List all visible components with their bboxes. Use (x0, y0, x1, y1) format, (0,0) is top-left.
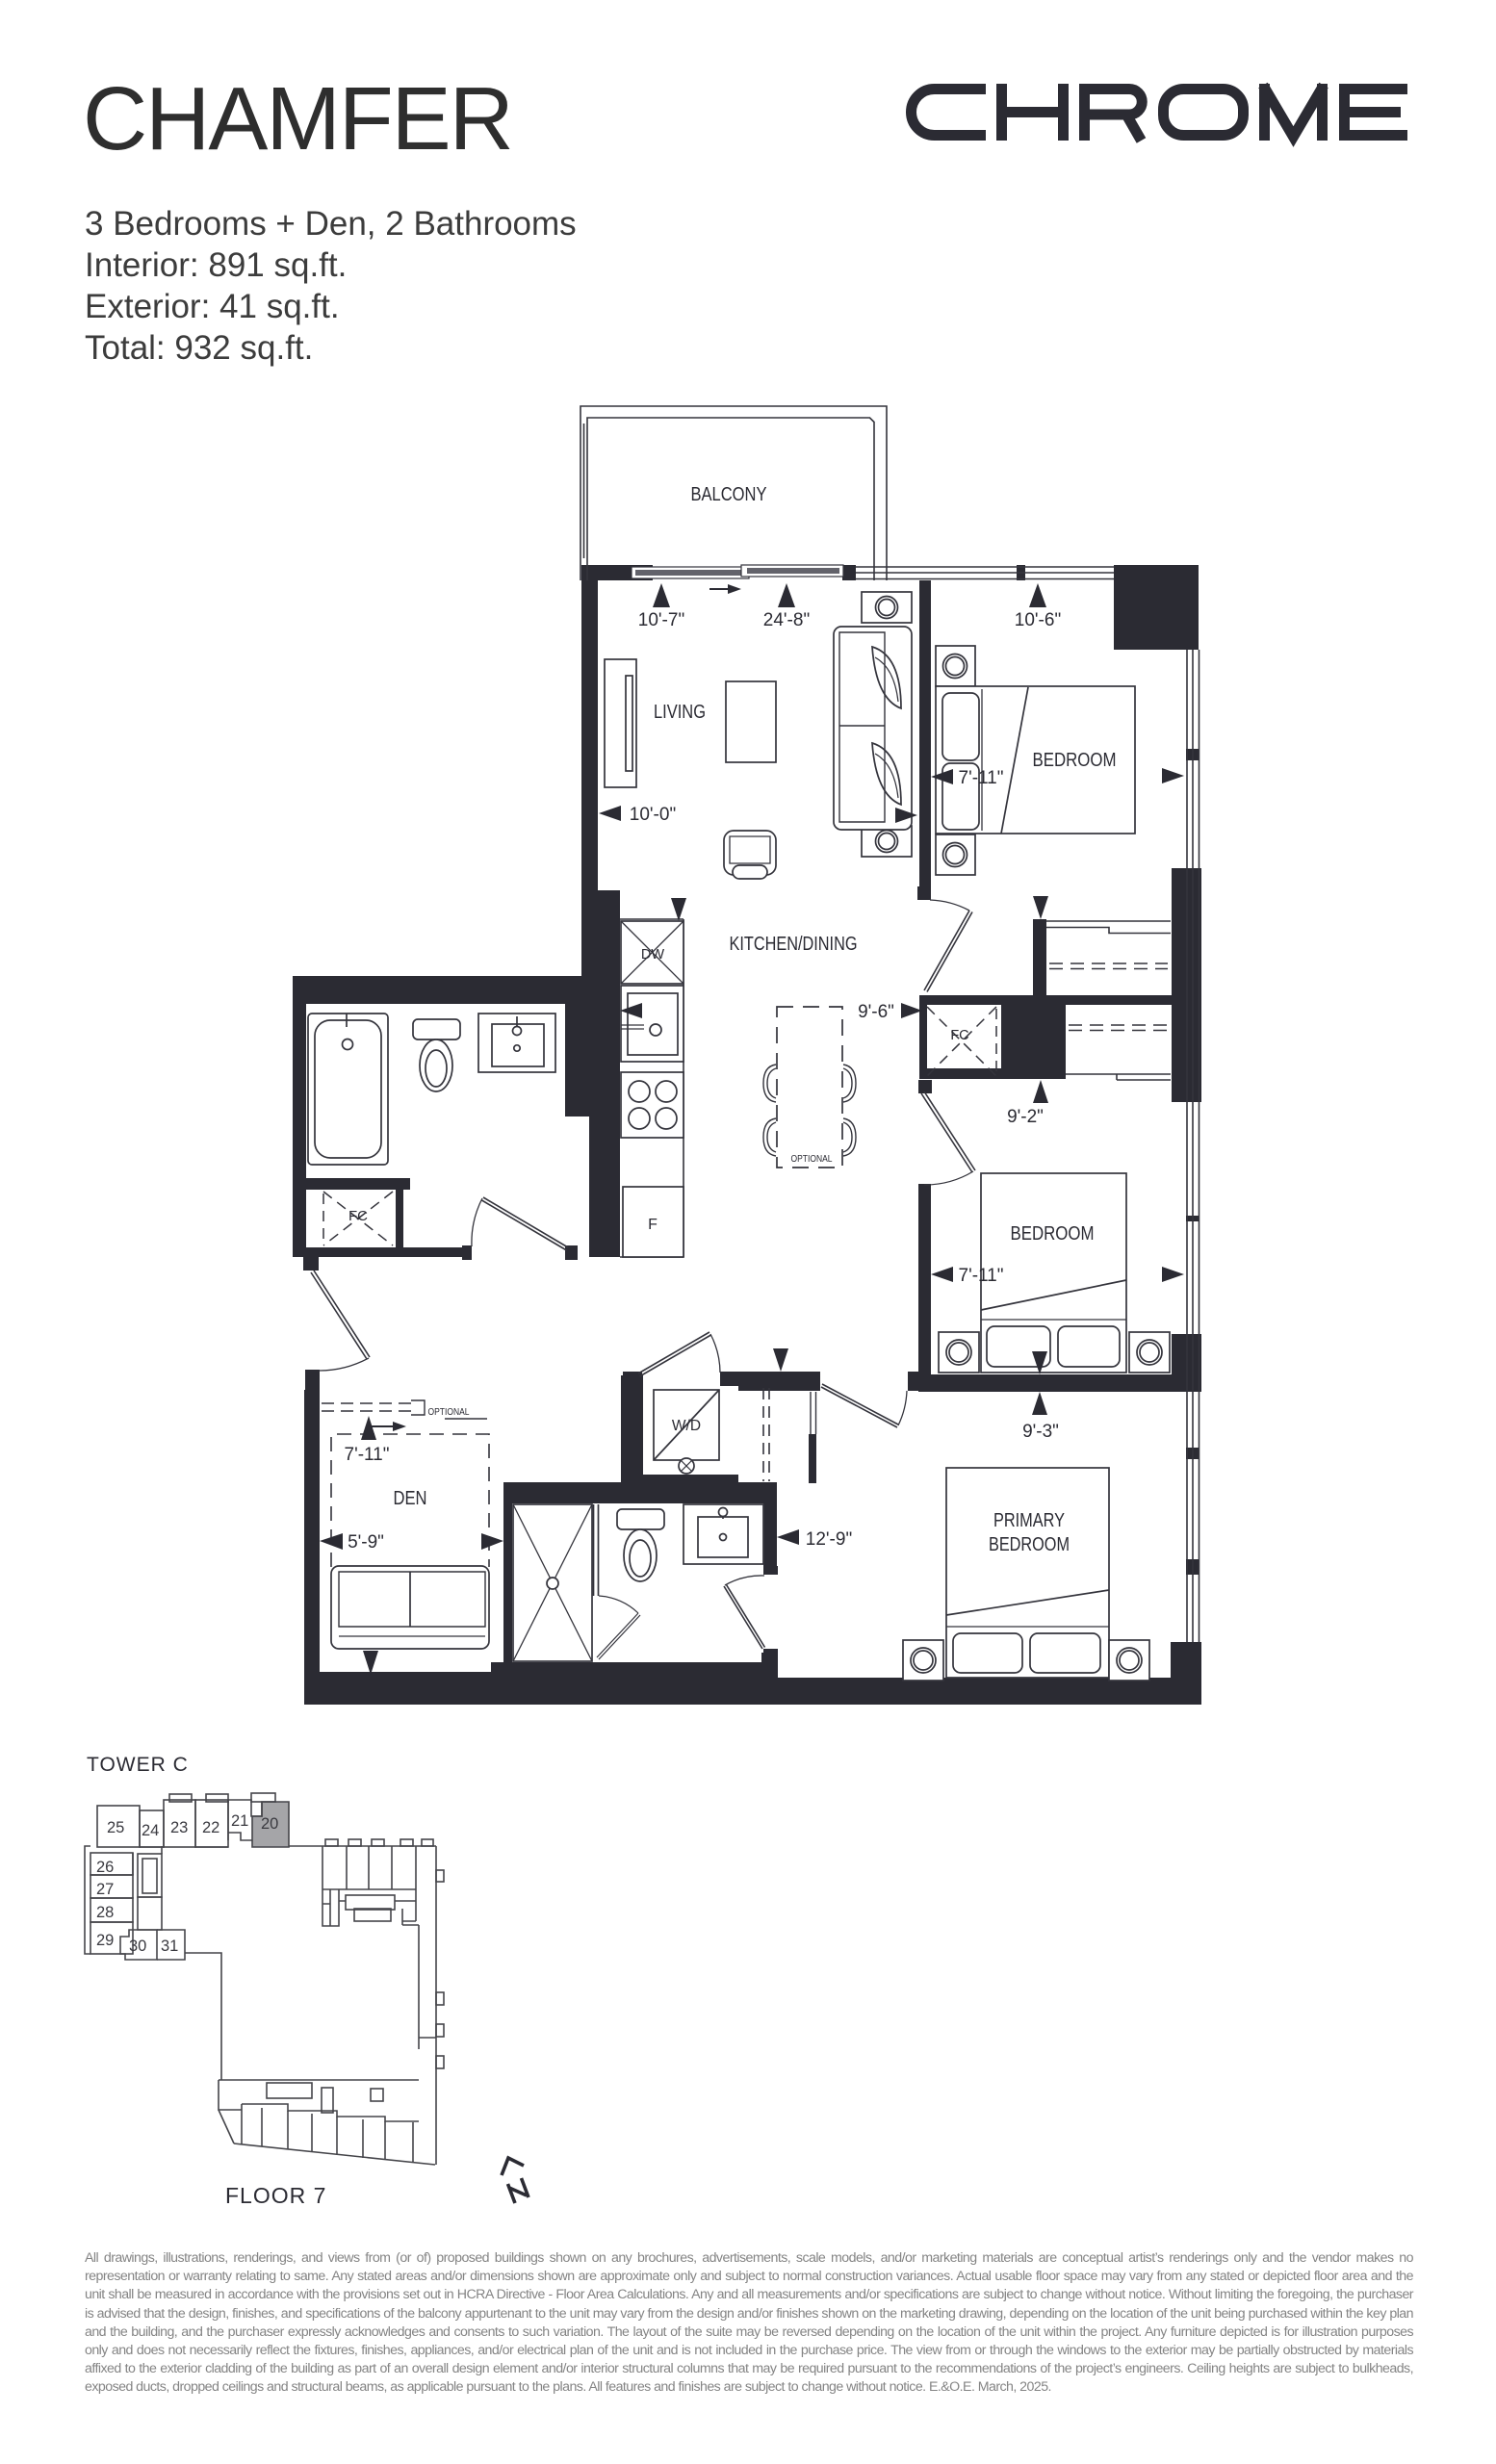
svg-text:TOWER C: TOWER C (87, 1754, 189, 1776)
svg-text:31: 31 (161, 1938, 178, 1955)
svg-text:BEDROOM: BEDROOM (1033, 750, 1117, 771)
svg-text:OPTIONAL: OPTIONAL (428, 1407, 470, 1418)
svg-text:28: 28 (96, 1904, 114, 1921)
svg-text:FC: FC (348, 1208, 368, 1224)
svg-text:10'-0": 10'-0" (630, 805, 676, 825)
svg-text:FLOOR 7: FLOOR 7 (225, 2183, 326, 2208)
svg-text:7'-11": 7'-11" (345, 1445, 390, 1465)
svg-text:BEDROOM: BEDROOM (989, 1534, 1070, 1555)
svg-text:BALCONY: BALCONY (691, 484, 767, 505)
svg-text:25: 25 (107, 1819, 124, 1836)
svg-text:W/D: W/D (672, 1418, 701, 1434)
svg-text:10'-7": 10'-7" (638, 610, 684, 630)
svg-text:5'-9": 5'-9" (348, 1532, 384, 1553)
svg-text:CHAMFER: CHAMFER (83, 68, 512, 168)
svg-text:30: 30 (129, 1938, 146, 1955)
svg-text:KITCHEN/DINING: KITCHEN/DINING (730, 934, 858, 955)
svg-text:24'-8": 24'-8" (763, 610, 810, 630)
svg-text:Interior: 891 sq.ft.: Interior: 891 sq.ft. (85, 246, 347, 284)
svg-text:26: 26 (96, 1859, 114, 1876)
svg-text:PRIMARY: PRIMARY (993, 1510, 1065, 1531)
svg-text:22: 22 (202, 1819, 219, 1836)
svg-text:Total: 932 sq.ft.: Total: 932 sq.ft. (85, 329, 313, 367)
svg-text:9'-3": 9'-3" (1022, 1422, 1059, 1442)
svg-text:DW: DW (641, 947, 664, 962)
svg-text:23: 23 (170, 1819, 188, 1836)
svg-text:10'-6": 10'-6" (1015, 610, 1061, 630)
svg-text:FC: FC (950, 1028, 968, 1043)
svg-text:12'-9": 12'-9" (806, 1529, 852, 1550)
svg-text:27: 27 (96, 1881, 114, 1898)
svg-text:OPTIONAL: OPTIONAL (791, 1154, 833, 1165)
svg-text:20: 20 (261, 1815, 278, 1833)
svg-text:9'-6": 9'-6" (858, 1002, 894, 1022)
svg-text:BEDROOM: BEDROOM (1011, 1223, 1095, 1245)
svg-text:3 Bedrooms + Den, 2 Bathrooms: 3 Bedrooms + Den, 2 Bathrooms (85, 205, 577, 243)
svg-text:7'-11": 7'-11" (959, 768, 1004, 788)
svg-text:24: 24 (142, 1822, 159, 1839)
svg-text:Exterior: 41 sq.ft.: Exterior: 41 sq.ft. (85, 288, 340, 325)
svg-text:21: 21 (231, 1812, 248, 1830)
svg-text:7'-11": 7'-11" (959, 1266, 1004, 1286)
svg-text:F: F (648, 1217, 658, 1233)
svg-text:DEN: DEN (394, 1488, 427, 1509)
svg-text:LIVING: LIVING (654, 702, 706, 723)
svg-text:9'-2": 9'-2" (1007, 1107, 1044, 1127)
svg-text:29: 29 (96, 1932, 114, 1949)
